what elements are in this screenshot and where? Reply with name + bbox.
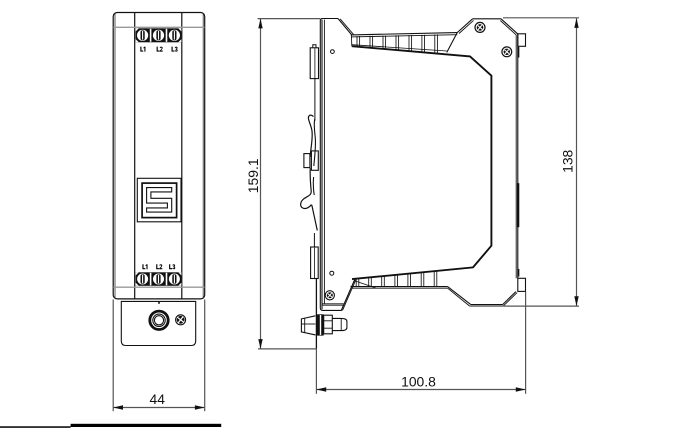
svg-text:44: 44 xyxy=(149,391,165,407)
svg-text:159.1: 159.1 xyxy=(245,158,261,193)
svg-text:138: 138 xyxy=(560,149,576,172)
svg-text:100.8: 100.8 xyxy=(401,374,436,390)
